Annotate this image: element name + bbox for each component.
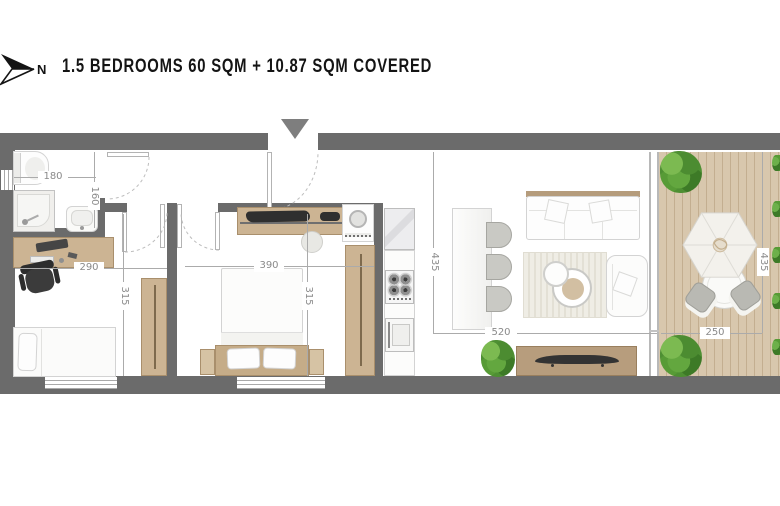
toilet-tank [14,153,21,183]
single-bed [13,327,116,377]
dim-bathroom-depth: 160 [88,182,100,210]
dim-study-width: 290 [74,262,104,274]
dim-study-depth: 315 [118,282,130,310]
sink-faucet-icon [80,226,84,230]
hanging-clothes [246,210,310,222]
edge-plant-4 [772,293,780,309]
sink-basin [71,210,93,226]
tv-screen [535,355,619,364]
washing-machine [342,204,374,242]
edge-plant-1 [772,155,780,171]
desk-mouse [59,258,64,263]
wardrobe-groove [154,285,156,369]
armchair [606,255,648,317]
office-chair [18,258,63,303]
terrace-plant-top [660,151,702,193]
dim-bathroom-width: 180 [38,171,68,183]
single-bed-duvet-fold [41,329,42,376]
sofa-pillow-left [544,199,569,224]
wardrobe-groove [360,254,362,366]
bedroom-pouf [301,231,323,253]
washing-machine-panel [345,233,371,237]
dim-living-depth: 435 [428,248,440,276]
oven-handle [388,322,390,348]
floor-plan-canvas: N 1.5 BEDROOMS 60 SQM + 10.87 SQM COVERE… [0,0,780,506]
dim-line-terrace-depth [762,152,763,333]
kitchen-fridge [384,208,415,250]
edge-plant-3 [772,247,780,263]
dim-living-width: 520 [485,327,517,339]
sofa-pillow-right [588,199,612,223]
oven [385,318,414,352]
bed-pillow-left [227,347,261,369]
dining-chair-2 [486,254,512,280]
dim-bedroom-depth: 315 [302,282,314,310]
dim-terrace-depth: 435 [757,248,769,276]
hanging-clothes-small [320,212,340,221]
tv-foot-left [551,364,554,367]
dim-terrace-width: 250 [700,327,730,339]
washing-machine-door [349,210,367,228]
sofa-body [526,196,640,240]
dim-line-living-width [433,333,657,334]
shower [13,190,55,232]
oven-door [392,324,410,346]
nightstand-right [309,349,324,375]
edge-plant-2 [772,201,780,217]
coffee-table-small [543,261,569,287]
dim-bedroom-width: 390 [254,260,284,272]
terrace-plant-bottom [660,335,702,377]
edge-plant-5 [772,339,780,355]
living-plant [481,340,515,377]
office-chair-seat [24,266,56,295]
armchair-pillow [612,271,638,297]
tv-foot-right [601,364,604,367]
tv-console [516,346,637,376]
sofa [526,191,640,240]
bed-pillow-right [263,347,297,369]
kitchen-counter [384,250,415,376]
bedroom-wardrobe-left [141,278,167,376]
stove-knobs [389,297,411,300]
dining-chair-1 [486,222,512,248]
nightstand-left [200,349,215,375]
parasol [681,206,759,284]
stove [385,270,414,304]
dim-line-living-depth [433,152,434,333]
bedroom-wardrobe-right [345,245,375,376]
dining-chair-3 [486,286,512,312]
single-bed-pillow [17,333,37,372]
